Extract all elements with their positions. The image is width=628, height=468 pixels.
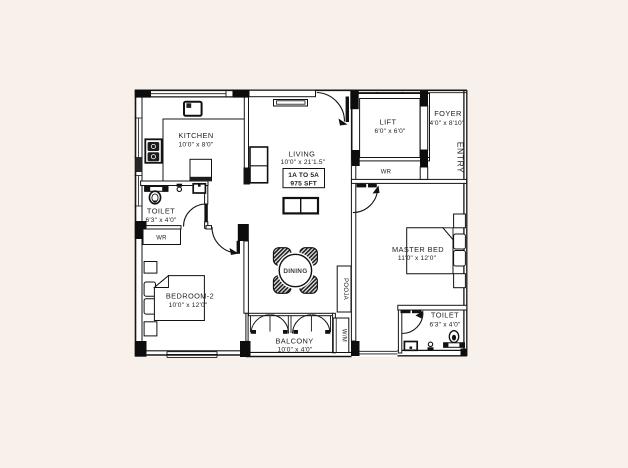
svg-text:KITCHEN: KITCHEN xyxy=(178,131,213,140)
svg-text:1A TO 5A: 1A TO 5A xyxy=(288,172,319,179)
svg-text:TOILET: TOILET xyxy=(147,207,175,216)
svg-text:4'0" x 8'10": 4'0" x 8'10" xyxy=(430,120,465,127)
svg-text:TOILET: TOILET xyxy=(431,311,459,320)
svg-text:WR: WR xyxy=(381,170,392,176)
svg-text:MASTER BED: MASTER BED xyxy=(392,245,444,254)
svg-text:11'0" x 12'0": 11'0" x 12'0" xyxy=(398,255,437,262)
svg-text:LIVING: LIVING xyxy=(289,149,316,158)
svg-text:WR: WR xyxy=(156,236,167,242)
svg-text:LIFT: LIFT xyxy=(380,118,397,127)
svg-text:10'0" x 4'0": 10'0" x 4'0" xyxy=(278,347,313,354)
svg-text:FOYER: FOYER xyxy=(434,109,461,118)
svg-text:BEDROOM-2: BEDROOM-2 xyxy=(166,291,214,300)
svg-text:10'0" x 21'1.5": 10'0" x 21'1.5" xyxy=(281,159,326,166)
svg-text:DINING: DINING xyxy=(283,268,307,275)
svg-text:6'3" x 4'0": 6'3" x 4'0" xyxy=(145,217,176,224)
svg-text:POOJA: POOJA xyxy=(342,278,348,300)
svg-text:10'0" x 12'0": 10'0" x 12'0" xyxy=(169,302,208,309)
svg-text:6'3" x 4'0": 6'3" x 4'0" xyxy=(429,322,460,329)
svg-text:10'0" x 8'0": 10'0" x 8'0" xyxy=(179,142,214,149)
svg-text:BALCONY: BALCONY xyxy=(275,337,313,346)
svg-text:ENTRY: ENTRY xyxy=(456,142,466,173)
svg-text:W/M: W/M xyxy=(341,329,347,342)
svg-text:6'0" x 6'0": 6'0" x 6'0" xyxy=(374,128,405,135)
svg-text:975 SFT: 975 SFT xyxy=(290,181,317,188)
